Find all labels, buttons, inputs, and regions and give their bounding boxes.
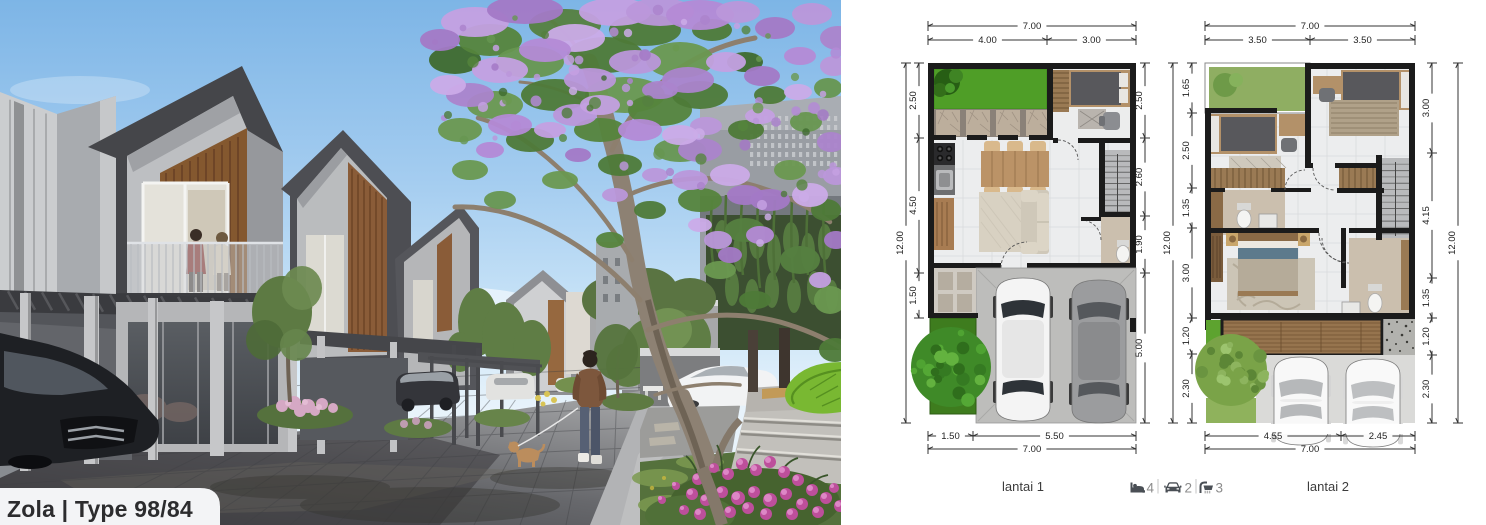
- svg-text:1.20: 1.20: [1181, 327, 1192, 346]
- svg-text:1.90: 1.90: [1134, 235, 1145, 254]
- svg-text:lantai 1: lantai 1: [1002, 479, 1044, 494]
- svg-text:2.45: 2.45: [1369, 431, 1388, 442]
- svg-text:2: 2: [1185, 481, 1193, 496]
- svg-text:3.50: 3.50: [1248, 35, 1267, 46]
- svg-text:7.00: 7.00: [1023, 21, 1042, 32]
- svg-text:2.50: 2.50: [1134, 91, 1145, 110]
- svg-text:1.35: 1.35: [1181, 199, 1192, 218]
- svg-text:2.50: 2.50: [908, 91, 919, 110]
- svg-text:2.30: 2.30: [1181, 379, 1192, 398]
- svg-text:1.65: 1.65: [1181, 79, 1192, 98]
- svg-text:4: 4: [1147, 481, 1155, 496]
- svg-text:4.55: 4.55: [1264, 431, 1283, 442]
- svg-text:2.30: 2.30: [1421, 380, 1432, 399]
- svg-text:7.00: 7.00: [1301, 21, 1320, 32]
- svg-text:5.00: 5.00: [1134, 339, 1145, 358]
- svg-text:3.50: 3.50: [1353, 35, 1372, 46]
- svg-text:3.00: 3.00: [1082, 35, 1101, 46]
- svg-text:7.00: 7.00: [1301, 444, 1320, 455]
- svg-text:Zola | Type 98/84: Zola | Type 98/84: [7, 496, 193, 522]
- svg-text:3.00: 3.00: [1181, 264, 1192, 283]
- svg-text:1.35: 1.35: [1421, 289, 1432, 308]
- svg-text:lantai 2: lantai 2: [1307, 479, 1349, 494]
- svg-text:4.15: 4.15: [1421, 206, 1432, 225]
- svg-text:2.60: 2.60: [1134, 168, 1145, 187]
- svg-text:12.00: 12.00: [895, 231, 906, 255]
- svg-text:3: 3: [1216, 481, 1224, 496]
- svg-text:7.00: 7.00: [1023, 444, 1042, 455]
- svg-text:1.20: 1.20: [1421, 327, 1432, 346]
- svg-text:4.50: 4.50: [908, 196, 919, 215]
- svg-text:5.50: 5.50: [1045, 431, 1064, 442]
- svg-text:1.50: 1.50: [908, 286, 919, 305]
- svg-text:2.50: 2.50: [1181, 141, 1192, 160]
- svg-text:3.00: 3.00: [1421, 99, 1432, 118]
- svg-text:1.50: 1.50: [941, 431, 960, 442]
- svg-text:12.00: 12.00: [1447, 231, 1458, 255]
- svg-text:12.00: 12.00: [1162, 231, 1173, 255]
- svg-text:4.00: 4.00: [978, 35, 997, 46]
